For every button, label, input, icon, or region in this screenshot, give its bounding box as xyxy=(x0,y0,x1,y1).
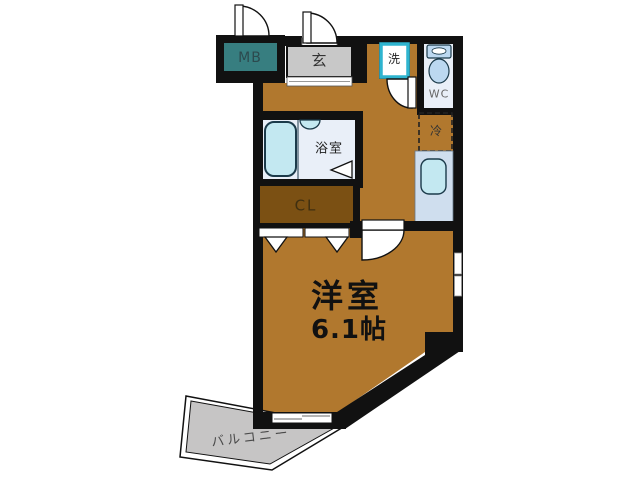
floorplan-image: MB 玄 洗 WC 冷 浴室 CL 洋室 6.1帖 バルコニー xyxy=(0,0,640,480)
meter-box-label: MB xyxy=(238,51,262,65)
toilet-bowl xyxy=(429,59,449,83)
wc-wall-left xyxy=(417,44,424,115)
side-window-upper xyxy=(455,253,462,274)
side-window-lower xyxy=(455,276,462,296)
wall-top-left-a xyxy=(283,36,302,46)
wall-room-top-right xyxy=(404,221,463,231)
entrance-door-leaf xyxy=(303,12,311,43)
toilet-tank-lid xyxy=(432,48,446,54)
balcony-window xyxy=(272,413,332,423)
closet-door-track-right xyxy=(305,228,349,237)
room-door-leaf xyxy=(362,220,404,230)
wc-wall-bottom xyxy=(417,108,454,115)
wall-room-top-left xyxy=(350,221,362,238)
meterbox-door-leaf xyxy=(235,5,243,36)
closet-door-track-left xyxy=(259,228,303,237)
washer-label: 洗 xyxy=(388,53,400,65)
main-room-label: 洋室 xyxy=(311,280,383,312)
wc-label: WC xyxy=(429,89,450,100)
wall-entrance-right xyxy=(352,36,367,83)
wall-right xyxy=(453,36,463,352)
main-room-size: 6.1帖 xyxy=(311,317,387,343)
entrance-label: 玄 xyxy=(311,54,326,69)
bathroom-label: 浴室 xyxy=(315,143,343,156)
washroom-door-leaf xyxy=(408,77,416,108)
closet-label: CL xyxy=(295,199,318,214)
floorplan-svg xyxy=(0,0,640,480)
wall-top-left-b xyxy=(337,36,352,46)
bathtub xyxy=(265,122,296,176)
kitchen-sink xyxy=(421,159,446,194)
refrigerator-label: 冷 xyxy=(430,125,442,137)
